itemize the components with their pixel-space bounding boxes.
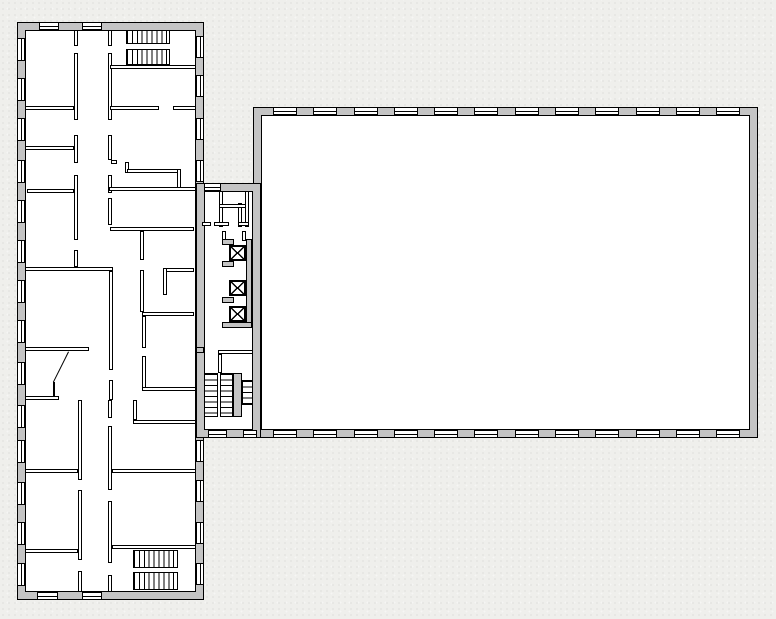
- partition-wall: [78, 571, 82, 592]
- partition-wall: [109, 187, 196, 191]
- window: [17, 362, 25, 385]
- window: [636, 107, 660, 115]
- elevator-car: [229, 306, 246, 322]
- stair-flight: [220, 373, 233, 417]
- partition-wall: [110, 65, 196, 69]
- partition-wall: [108, 575, 112, 592]
- partition-wall: [25, 267, 113, 271]
- partition-wall: [74, 175, 78, 240]
- elevator-car: [229, 245, 246, 261]
- partition-wall: [25, 396, 59, 400]
- window: [17, 200, 25, 223]
- partition-wall: [173, 106, 196, 110]
- window: [716, 430, 740, 438]
- window: [434, 430, 458, 438]
- window: [313, 107, 337, 115]
- partition-wall: [74, 250, 78, 267]
- partition-wall: [133, 420, 196, 424]
- window: [515, 430, 539, 438]
- stair-flight: [204, 373, 218, 417]
- right-wing-interior: [261, 115, 750, 430]
- wall-segment: [222, 322, 252, 328]
- partition-wall: [74, 135, 78, 163]
- partition-wall: [108, 198, 112, 225]
- partition-wall: [78, 490, 82, 560]
- partition-wall: [109, 271, 113, 370]
- partition-wall: [108, 135, 112, 160]
- window: [82, 22, 102, 30]
- stair-flight: [133, 550, 178, 568]
- window: [196, 522, 204, 544]
- partition-wall: [142, 312, 194, 316]
- window: [37, 592, 58, 600]
- window: [204, 183, 221, 191]
- partition-wall: [127, 169, 181, 173]
- window: [82, 592, 102, 600]
- partition-wall: [133, 400, 137, 420]
- wall-segment: [196, 347, 204, 353]
- window: [17, 563, 25, 586]
- partition-wall: [25, 106, 74, 110]
- window: [17, 38, 25, 61]
- wall-segment: [233, 373, 242, 417]
- window: [196, 563, 204, 585]
- partition-wall: [74, 53, 78, 120]
- window: [595, 107, 619, 115]
- window: [17, 118, 25, 141]
- partition-wall: [202, 222, 211, 226]
- window: [17, 240, 25, 263]
- wall-segment: [246, 239, 252, 328]
- window: [196, 36, 204, 58]
- window: [243, 430, 257, 438]
- window: [555, 430, 579, 438]
- partition-wall: [218, 350, 253, 354]
- partition-wall: [111, 160, 117, 164]
- window: [196, 160, 204, 182]
- partition-wall: [218, 354, 222, 373]
- window: [313, 430, 337, 438]
- partition-wall: [27, 189, 74, 193]
- stair-flight: [242, 380, 253, 405]
- partition-wall: [110, 227, 194, 231]
- window: [354, 430, 378, 438]
- partition-wall: [142, 356, 146, 391]
- partition-wall: [142, 387, 196, 391]
- partition-wall: [112, 545, 196, 549]
- partition-wall: [25, 469, 78, 473]
- partition-wall: [25, 146, 74, 150]
- window: [636, 430, 660, 438]
- stair-flight: [126, 30, 170, 44]
- floor-plan: [0, 0, 776, 619]
- window: [17, 440, 25, 463]
- window: [208, 430, 227, 438]
- partition-wall: [112, 469, 196, 473]
- window: [394, 107, 418, 115]
- partition-wall: [108, 400, 112, 418]
- window: [17, 405, 25, 428]
- wall-segment: [222, 261, 234, 267]
- partition-wall: [74, 30, 78, 46]
- window: [17, 280, 25, 303]
- partition-wall: [108, 30, 112, 46]
- partition-wall: [110, 106, 159, 110]
- window: [17, 160, 25, 183]
- partition-wall: [140, 231, 144, 260]
- window: [434, 107, 458, 115]
- partition-wall: [140, 270, 144, 312]
- window: [474, 430, 498, 438]
- partition-wall: [214, 222, 229, 226]
- partition-wall: [25, 347, 89, 351]
- partition-wall: [108, 501, 112, 563]
- window: [196, 480, 204, 502]
- partition-wall: [238, 222, 249, 226]
- window: [17, 78, 25, 101]
- window: [595, 430, 619, 438]
- window: [354, 107, 378, 115]
- partition-wall: [109, 380, 113, 400]
- window: [17, 320, 25, 343]
- window: [394, 430, 418, 438]
- elevator-car: [229, 280, 246, 296]
- stair-flight: [133, 572, 178, 590]
- partition-wall: [142, 316, 146, 348]
- partition-wall: [25, 549, 78, 553]
- window: [676, 107, 700, 115]
- partition-wall: [78, 400, 82, 480]
- window: [515, 107, 539, 115]
- partition-wall: [163, 268, 194, 272]
- window: [17, 482, 25, 505]
- window: [676, 430, 700, 438]
- window: [273, 430, 297, 438]
- window: [17, 522, 25, 545]
- window: [39, 22, 59, 30]
- partition-wall: [163, 268, 167, 295]
- window: [273, 107, 297, 115]
- stair-flight: [126, 49, 170, 65]
- window: [196, 118, 204, 140]
- window: [555, 107, 579, 115]
- window: [196, 75, 204, 97]
- window: [716, 107, 740, 115]
- window: [474, 107, 498, 115]
- partition-wall: [108, 426, 112, 490]
- window: [196, 440, 204, 462]
- partition-wall: [53, 382, 55, 396]
- wall-segment: [222, 297, 234, 303]
